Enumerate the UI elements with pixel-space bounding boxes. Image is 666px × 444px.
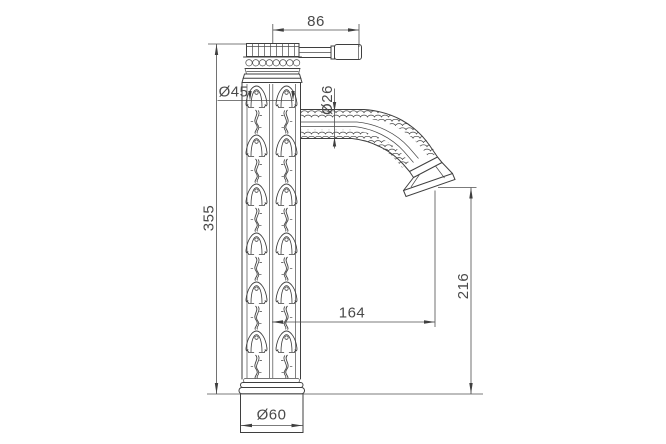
- dim-86-label: 86: [307, 13, 325, 30]
- ornament-motif: [276, 233, 297, 281]
- handle-grip: [335, 45, 362, 60]
- crown-band: [247, 44, 300, 57]
- ornament-motif: [246, 331, 267, 379]
- crown-ribs: [253, 44, 295, 57]
- dim-164-arrow-left: [272, 320, 283, 323]
- capital-flare: [242, 74, 302, 83]
- ornament-motif: [246, 184, 267, 232]
- cap-neck: [245, 69, 300, 75]
- ornament-motif: [246, 282, 267, 330]
- drawing-canvas: 86 Ø45 Ø26 355 164 216 Ø60: [0, 0, 666, 444]
- spout-bottom-edge: [301, 139, 410, 172]
- spout: [301, 110, 456, 197]
- dim-164-arrow-right: [424, 320, 435, 323]
- dimension-216: 216: [438, 188, 477, 395]
- ornament-motif: [276, 331, 297, 379]
- dimension-d60: Ø60: [241, 407, 303, 428]
- dim-86-arrow-left: [273, 28, 284, 31]
- dim-355-arrow-bottom: [215, 383, 218, 394]
- dim-164-label: 164: [339, 305, 366, 322]
- handle-lever: [299, 45, 362, 60]
- dim-216-label: 216: [455, 273, 472, 300]
- dimension-86: 86: [273, 13, 359, 47]
- column-ornament-right: [276, 86, 297, 379]
- column-body: [242, 83, 301, 380]
- bead-band: [246, 60, 300, 66]
- ornament-motif: [276, 135, 297, 183]
- faucet-elevation: [207, 44, 483, 433]
- ornament-motif: [276, 184, 297, 232]
- ornament-motif: [246, 233, 267, 281]
- ornament-motif: [246, 135, 267, 183]
- dim-355-label: 355: [201, 205, 218, 232]
- dim-86-arrow-right: [348, 28, 359, 31]
- technical-drawing: 86 Ø45 Ø26 355 164 216 Ø60: [0, 0, 666, 444]
- dim-d60-label: Ø60: [257, 407, 287, 424]
- dim-d45-label: Ø45: [219, 84, 249, 101]
- dim-d60-arrow-right: [292, 424, 303, 427]
- base-ring-3: [239, 388, 305, 394]
- base-ring-2: [241, 383, 304, 388]
- dim-216-arrow-top: [469, 188, 472, 199]
- spout-outlet-face: [404, 174, 456, 197]
- dimension-164: 164: [272, 191, 435, 328]
- column-center-seam: [270, 84, 273, 378]
- spout-ring-band: [410, 157, 443, 178]
- dim-355-arrow-top: [215, 44, 218, 55]
- handle-collar: [331, 46, 335, 59]
- dim-d60-arrow-left: [241, 424, 252, 427]
- dim-216-arrow-bottom: [469, 383, 472, 394]
- handle-cap: [242, 44, 302, 83]
- column-ornament-left: [246, 86, 267, 379]
- base-ring-1: [244, 379, 300, 383]
- dim-d26-label: Ø26: [319, 85, 336, 115]
